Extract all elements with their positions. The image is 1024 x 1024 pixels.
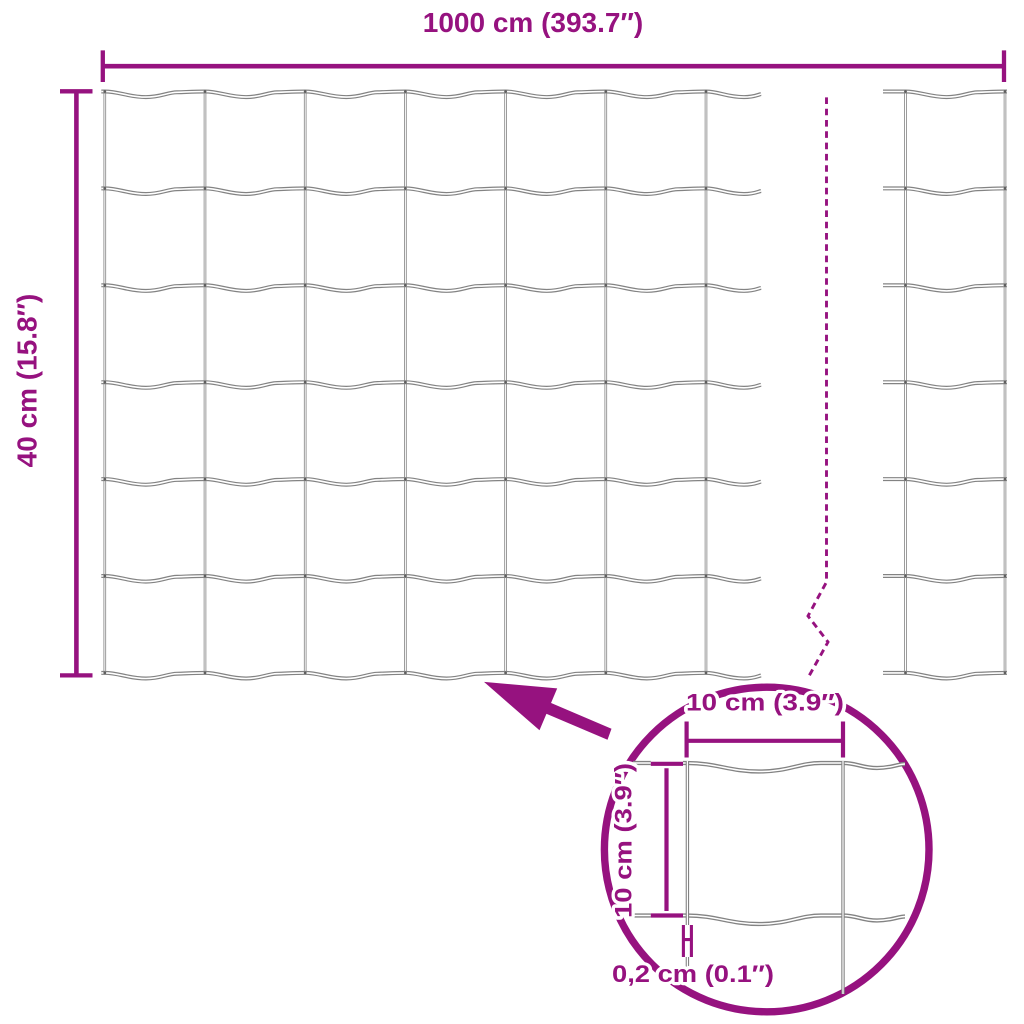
svg-text:10 cm (3.9″): 10 cm (3.9″): [611, 763, 638, 918]
svg-text:10 cm (3.9″): 10 cm (3.9″): [686, 690, 844, 717]
svg-text:40 cm (15.8″): 40 cm (15.8″): [12, 294, 43, 468]
svg-text:1000 cm (393.7″): 1000 cm (393.7″): [423, 7, 643, 38]
svg-text:0,2 cm (0.1″): 0,2 cm (0.1″): [612, 961, 774, 988]
